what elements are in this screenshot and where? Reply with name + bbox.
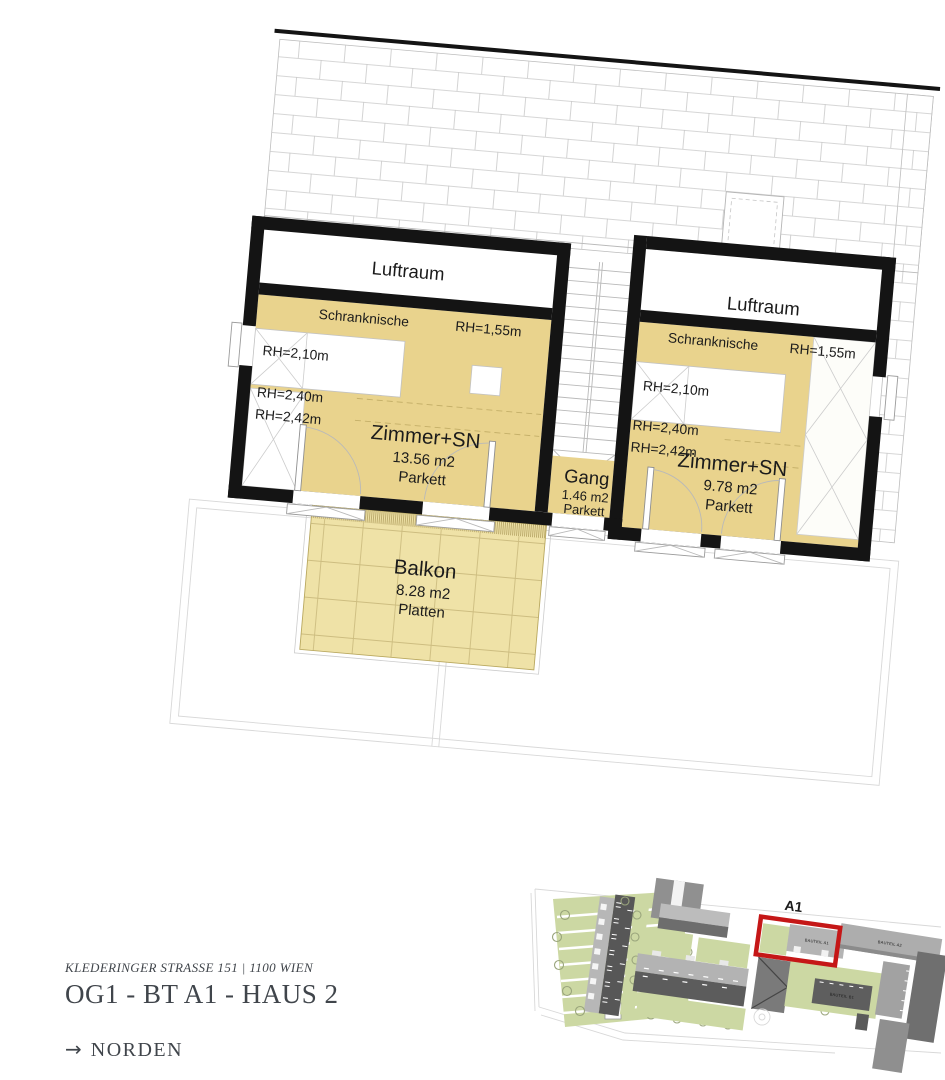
shaft-box [470, 365, 502, 396]
site-small-building [855, 1013, 869, 1031]
floorplan-page: Luftraum Schranknische RH=1,55m RH=2,10m… [0, 0, 945, 1080]
room-label-gang: Gang [563, 465, 610, 490]
site-green-a1 [759, 923, 790, 955]
north-indicator: →NORDEN [65, 1037, 339, 1062]
site-plan: BAUTEIL A1 BAUTEIL A2 BAUTEIL B1 [525, 875, 945, 1080]
title-block: KLEDERINGER STRASSE 151 | 1100 WIEN OG1 … [65, 960, 339, 1062]
floorplan-drawing: Luftraum Schranknische RH=1,55m RH=2,10m… [140, 18, 945, 828]
site-building-se [872, 1019, 909, 1073]
window-sill-left [228, 322, 242, 367]
address-line: KLEDERINGER STRASSE 151 | 1100 WIEN [65, 960, 339, 976]
page-title: OG1 - BT A1 - HAUS 2 [65, 979, 339, 1010]
site-playground [754, 1009, 770, 1025]
north-arrow-icon: → [65, 1037, 82, 1061]
siteplan-highlight-a1-label: A1 [784, 897, 804, 915]
site-building-d [875, 961, 910, 1019]
site-building-east-dark [904, 951, 945, 1043]
north-label: NORDEN [91, 1039, 183, 1061]
